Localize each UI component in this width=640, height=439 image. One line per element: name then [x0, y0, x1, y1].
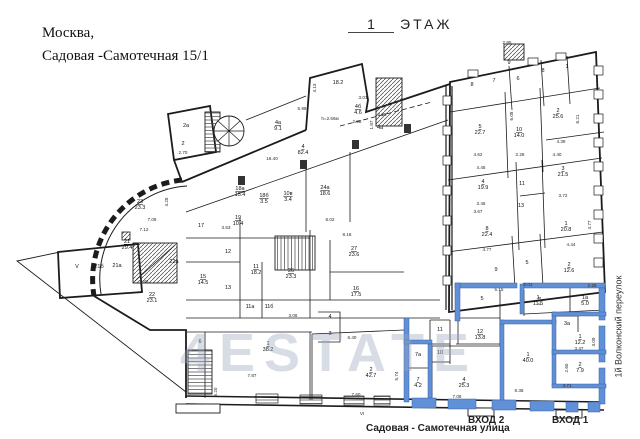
room-label: 1213.8 [475, 329, 486, 341]
room-label: 6 [516, 76, 519, 82]
dimension-label: 1.87 [369, 120, 374, 129]
room-label: 140.0 [523, 352, 534, 364]
room-label: 120.8 [561, 221, 572, 233]
dimension-label: 8.02 [326, 217, 335, 222]
street-label-right: 1й Волконский переулок [614, 242, 627, 412]
room-label: 1 [565, 64, 568, 70]
stairs-layer [122, 44, 524, 394]
street-label-bottom: Садовая - Самотечная улица [366, 423, 510, 434]
room-label: 212.6 [564, 262, 575, 274]
dimension-label: 3.47 [575, 346, 584, 351]
dimension-label: 2.98 [353, 119, 362, 124]
dimension-label: 8.18 [343, 232, 352, 237]
room-label: 18а15.4 [235, 186, 246, 198]
dimension-label: 4.28 [164, 197, 169, 206]
dimension-label: 7.87 [248, 373, 257, 378]
room-label: 8 [470, 82, 473, 88]
room-label: 5 [480, 296, 483, 302]
room-label: 1617.5 [351, 286, 362, 298]
room-label: 24а18.6 [320, 185, 331, 197]
dimension-label: 2.01 [524, 282, 533, 287]
room-label: 2723.6 [349, 246, 360, 258]
dimension-label: 4.13 [312, 83, 317, 92]
dimension-label: 6.21 [575, 114, 580, 123]
dimension-label: 4.40 [553, 152, 562, 157]
dimension-label: 2.28 [516, 152, 525, 157]
room-label: 1014.0 [514, 127, 525, 139]
address-line2: Садовая -Самотечная 15/1 [42, 45, 209, 68]
dimension-label: 7.60 [352, 392, 361, 397]
room-label: 4а [377, 125, 384, 131]
dimension-label: 7.08 [453, 394, 462, 399]
room-label: 10в3.4 [283, 191, 292, 203]
room-label: 9 [507, 60, 510, 66]
room-label: 225.6 [553, 108, 564, 120]
dimension-label: 3.46 [477, 201, 486, 206]
dimension-label: 5.15 [495, 287, 504, 292]
floor-plan-page: 987681522.71014.0225.6419.91113321.5822.… [0, 0, 640, 439]
room-label: 522.7 [475, 124, 486, 136]
room-label: 2223.1 [147, 292, 158, 304]
dimension-label: 4.77 [483, 247, 492, 252]
room-label: V [75, 264, 79, 270]
room-label: 17 [198, 223, 204, 229]
room-label: 5 [525, 260, 528, 266]
walls-layer [17, 52, 605, 418]
dimension-label: 6.40 [348, 335, 357, 340]
room-label: 18б3.5 [259, 193, 268, 205]
room-label: 9 [494, 267, 497, 273]
room-label: 3 [328, 331, 331, 337]
room-label: 11а [246, 304, 256, 310]
spiral-staircase [214, 116, 244, 146]
dimension-label: 4.77 [587, 220, 592, 229]
floor-label: 1ЭТАЖ [348, 16, 452, 33]
floor-number: 1 [348, 16, 394, 33]
dimension-label: 4.45 [477, 165, 486, 170]
dimension-label: 7.83 [140, 279, 149, 284]
room-label: 2129.4 [122, 239, 133, 251]
dimension-label: 3.67 [474, 209, 483, 214]
room-label: 321.5 [558, 166, 569, 178]
dimension-label: 3.09 [591, 337, 596, 346]
dimension-label: VI [360, 411, 364, 416]
room-label: 1514.5 [198, 274, 209, 286]
room-label: 6 [198, 339, 201, 345]
room-label: 2323.3 [135, 199, 146, 211]
address-line1: Москва, [42, 22, 209, 45]
room-label: 27.9 [576, 362, 584, 374]
dimension-label: 3.72 [559, 193, 568, 198]
dimension-label: 5.74 [394, 371, 399, 380]
room-label: 13 [518, 203, 524, 209]
dimension-label: 2.60 [564, 363, 569, 372]
room-label: 3а [564, 321, 571, 327]
room-label: 11 [519, 181, 525, 187]
dimension-label: 2.70 [179, 150, 188, 155]
room-label: 21а [112, 263, 122, 269]
room-label: 2 [181, 141, 184, 147]
dimension-label: 2.35 [378, 112, 387, 117]
room-label: 7 [492, 78, 495, 84]
room-label: 11б [265, 304, 274, 310]
dimension-label: 7.12 [140, 227, 149, 232]
room-label: 10 [437, 350, 443, 356]
dimension-label: 4.44 [567, 242, 576, 247]
dimension-label: 3.01 [359, 95, 368, 100]
dimension-label: 7.08 [148, 217, 157, 222]
room-label: 4б4.6 [354, 104, 362, 116]
dimension-label: h=2.66м [321, 116, 338, 121]
room-label: 1а5.0 [581, 295, 589, 307]
room-label: 13 [225, 285, 231, 291]
room-label: 2а [183, 123, 190, 129]
room-label: 425.3 [459, 377, 470, 389]
entrance-1-label: ВХОД 1 [552, 415, 588, 426]
dimension-label: 16.40 [266, 156, 278, 161]
dimension-label: 8.38 [515, 388, 524, 393]
room-label: 138.2 [263, 341, 274, 353]
dimension-label: 5.20 [213, 387, 218, 396]
room-label: 22а [169, 259, 179, 265]
dimension-label: 4.62 [474, 152, 483, 157]
address-title: Москва, Садовая -Самотечная 15/1 [42, 22, 209, 67]
room-label: 12 [225, 249, 231, 255]
room-label: 1118.2 [251, 264, 262, 276]
room-label: 4а9.1 [274, 120, 282, 132]
room-label: 242.7 [366, 367, 377, 379]
dimension-label: 4.39 [557, 139, 566, 144]
dimension-label: 3.71 [563, 383, 572, 388]
dimension-label: 2.95 [503, 40, 512, 45]
floor-word: ЭТАЖ [400, 16, 452, 32]
room-label: 482.4 [298, 144, 309, 156]
dimension-label: 2.24 [537, 296, 542, 305]
dimension-label: 3.06 [289, 313, 298, 318]
dimension-label: 2.25 [588, 283, 597, 288]
room-label: 8 [541, 68, 544, 74]
room-label: 11 [437, 327, 443, 333]
room-label: 4 [328, 314, 331, 320]
room-label: 74.2 [414, 377, 422, 389]
dimension-label: 5.99 [298, 106, 307, 111]
dimension-label: 6.08 [509, 111, 514, 120]
room-label: 419.9 [478, 179, 489, 191]
room-label: 112.2 [575, 334, 586, 346]
room-label: 18.2 [333, 80, 344, 86]
room-label: 1910.4 [233, 215, 244, 227]
dimension-label: 3.53 [222, 225, 231, 230]
room-label: 21б [94, 264, 103, 270]
room-label: 7а [415, 352, 422, 358]
room-label: 822.4 [482, 226, 493, 238]
